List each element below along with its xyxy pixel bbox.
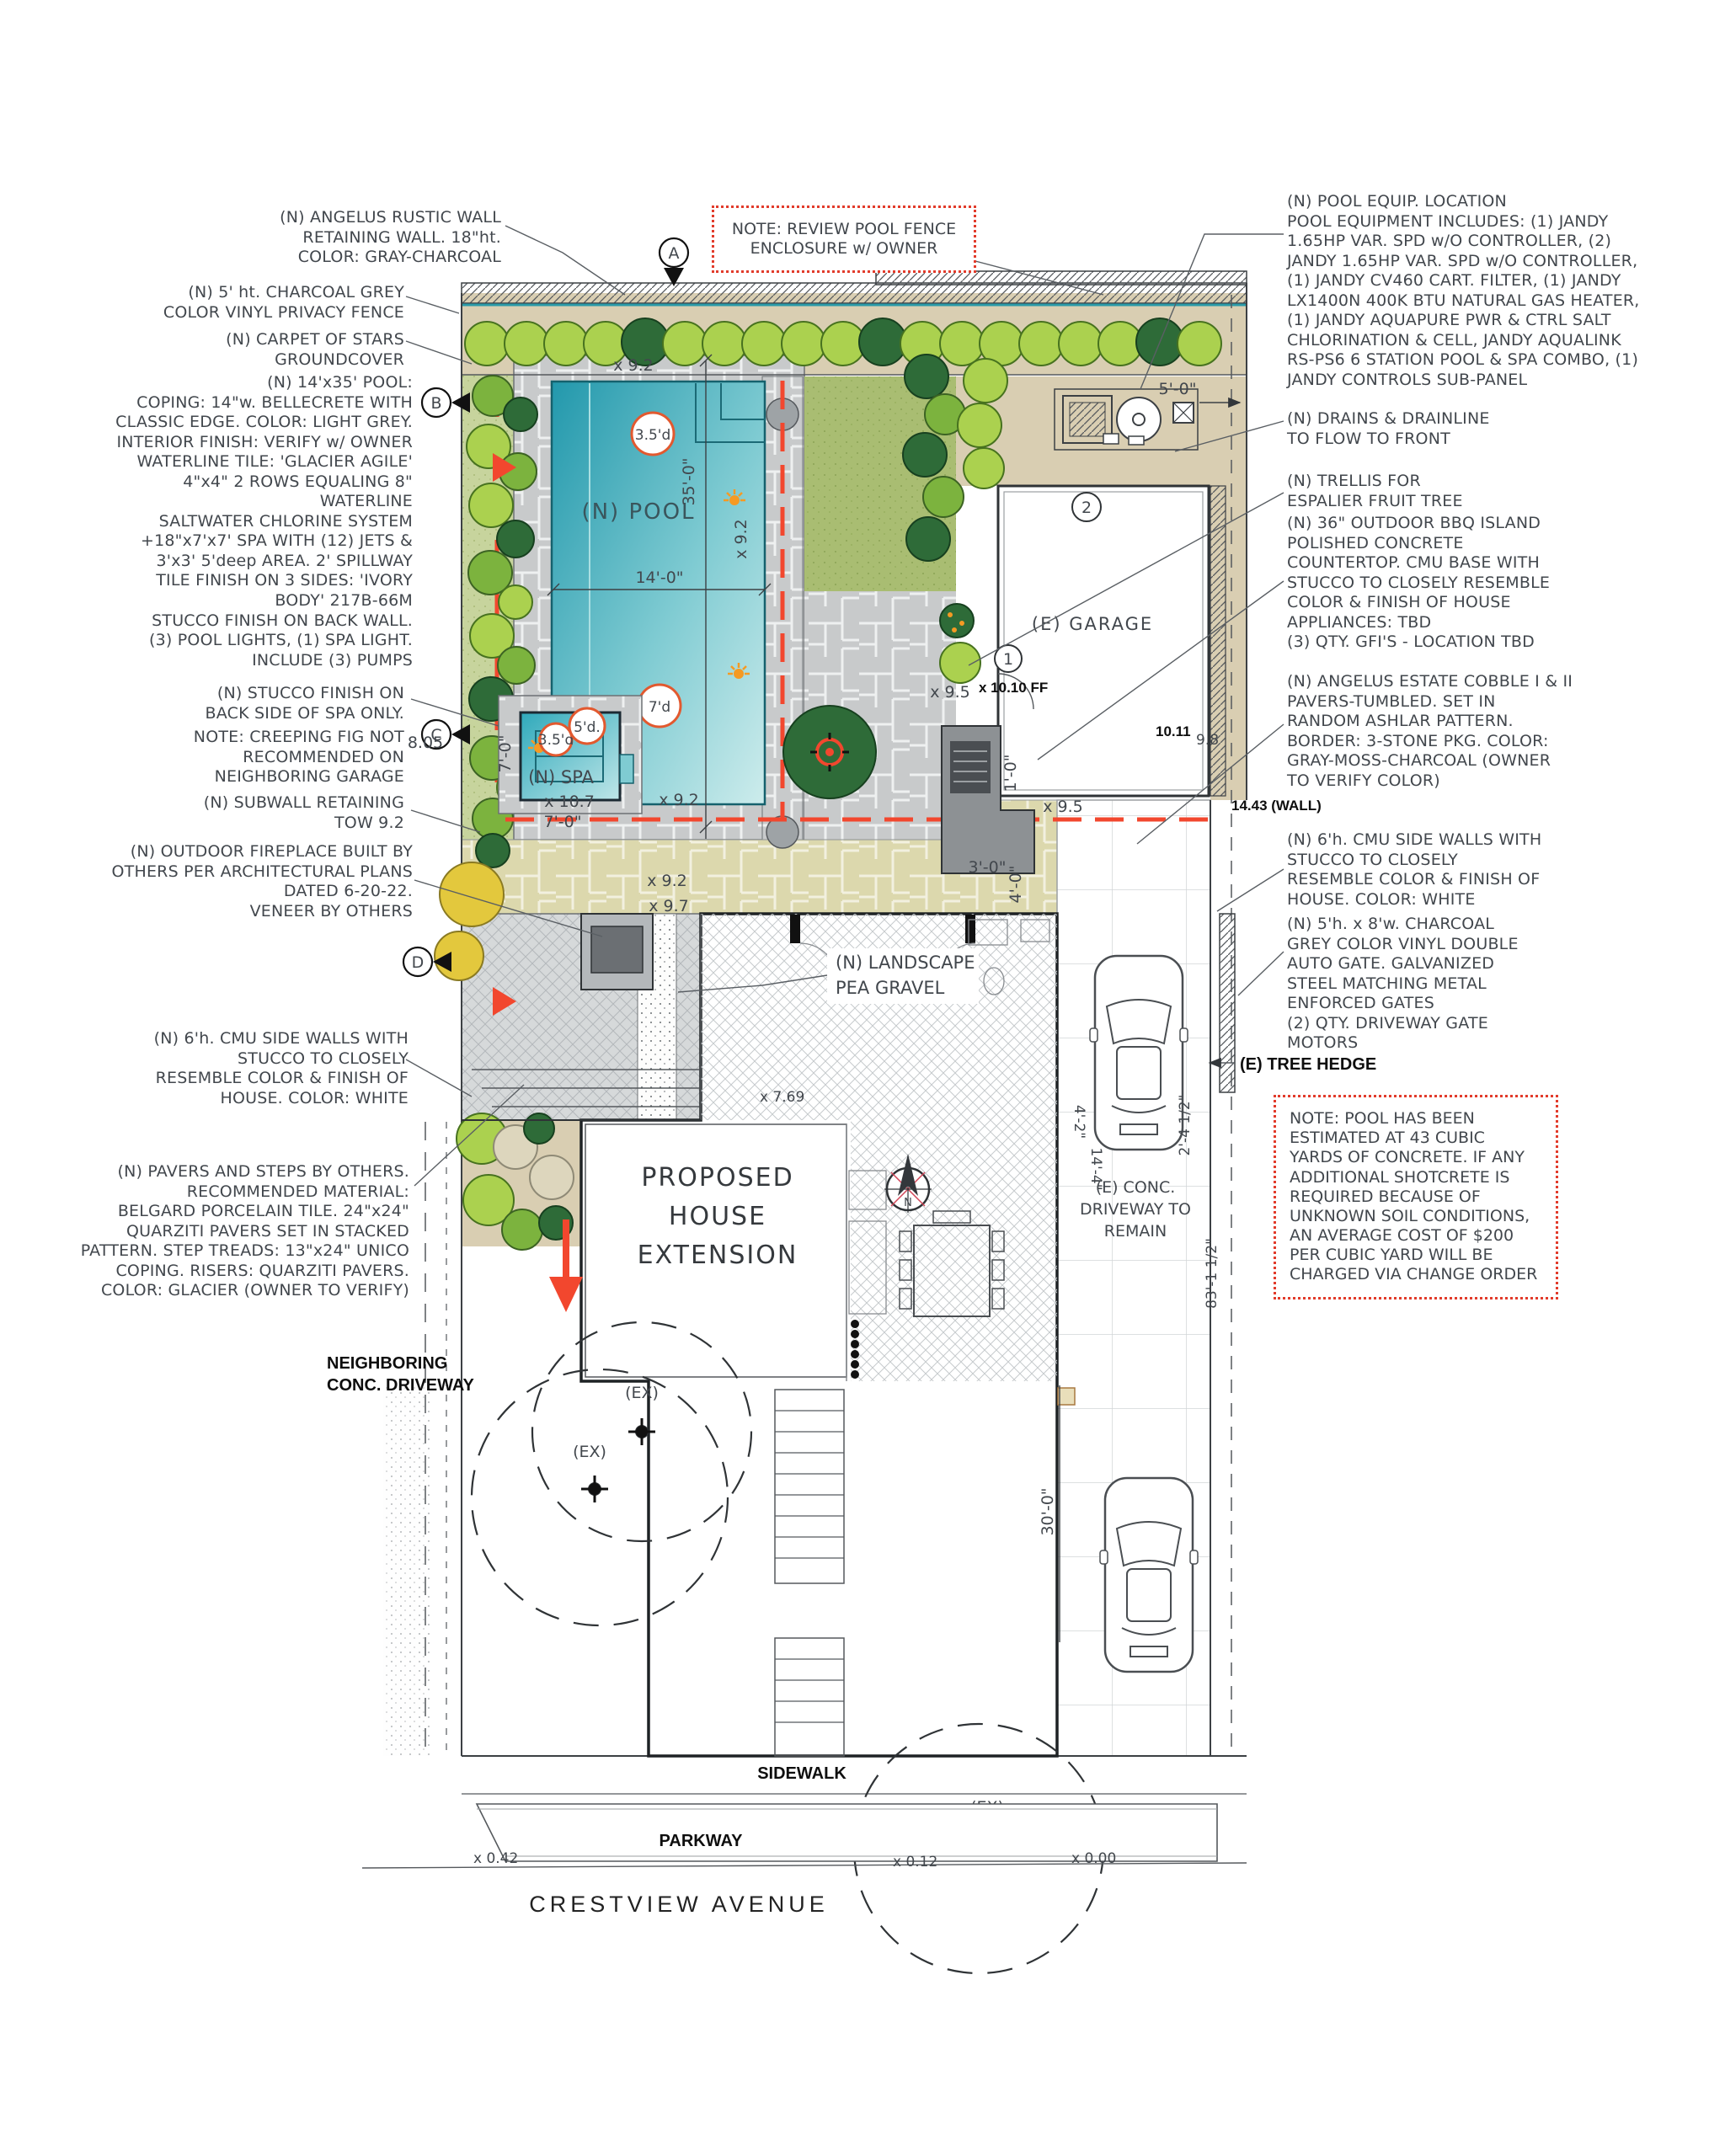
pool-depth-shallow: 3.5'd: [635, 427, 671, 444]
svg-text:x 9.2: x 9.2: [647, 872, 687, 890]
keynote-2: 2: [1081, 499, 1092, 517]
keynote-1: 1: [1003, 650, 1013, 669]
svg-text:14'-0": 14'-0": [635, 568, 683, 587]
svg-text:x 9.2: x 9.2: [613, 356, 654, 375]
house-label-1: PROPOSED: [641, 1163, 793, 1193]
spa-depth-shallow: 3.5'd: [538, 732, 574, 749]
section-d: D: [412, 953, 425, 972]
svg-text:1'-0": 1'-0": [1001, 755, 1020, 792]
svg-text:35'-0": 35'-0": [680, 457, 698, 505]
svg-text:x 9.2: x 9.2: [659, 791, 699, 809]
section-a: A: [669, 244, 680, 263]
ex-label: (EX): [625, 1384, 659, 1402]
site-plan-sheet: 3.5'd 7'd (N) POOL 3.5'd 5'd. (N) SPA: [0, 0, 1725, 2156]
note-cmu-west: (N) 6'h. CMU SIDE WALLS WITH STUCCO TO C…: [34, 1029, 409, 1108]
pea-gravel-label-1: (N) LANDSCAPE: [836, 953, 975, 973]
svg-text:3'-0": 3'-0": [969, 858, 1007, 877]
note-drains: (N) DRAINS & DRAINLINE TO FLOW TO FRONT: [1287, 409, 1641, 449]
parkway-label: PARKWAY: [660, 1832, 744, 1850]
note-trellis: (N) TRELLIS FOR ESPALIER FRUIT TREE: [1287, 472, 1641, 511]
section-b: B: [430, 394, 441, 413]
svg-text:x 0.00: x 0.00: [1071, 1850, 1116, 1867]
svg-text:x 0.42: x 0.42: [473, 1850, 518, 1867]
svg-text:x 10.7: x 10.7: [544, 792, 595, 811]
pea-gravel-label-2: PEA GRAVEL: [836, 978, 945, 998]
note-pool-spec: (N) 14'x35' POOL: COPING: 14"w. BELLECRE…: [21, 373, 413, 670]
house-label-3: EXTENSION: [638, 1241, 798, 1270]
note-privacy-fence: (N) 5' ht. CHARCOAL GREY COLOR VINYL PRI…: [46, 283, 404, 323]
hedge-row: [465, 318, 1221, 366]
svg-text:7'-0": 7'-0": [544, 813, 582, 831]
svg-text:x 0.12: x 0.12: [893, 1854, 937, 1870]
car-top-view: [1100, 1478, 1198, 1672]
pool-label: (N) POOL: [581, 499, 695, 525]
svg-text:83'-1 1/2": 83'-1 1/2": [1204, 1238, 1220, 1309]
pool-fence-note: NOTE: REVIEW POOL FENCE ENCLOSURE w/ OWN…: [712, 205, 976, 273]
svg-text:x 9.2: x 9.2: [732, 519, 750, 559]
sidewalk-label: SIDEWALK: [757, 1764, 846, 1783]
note-pool-equipment: (N) POOL EQUIP. LOCATION POOL EQUIPMENT …: [1287, 192, 1649, 390]
spa-depth-deep: 5'd.: [574, 719, 601, 736]
note-fireplace: (N) OUTDOOR FIREPLACE BUILT BY OTHERS PE…: [21, 842, 413, 921]
note-auto-gate: (N) 5'h. x 8'w. CHARCOAL GREY COLOR VINY…: [1287, 915, 1641, 1054]
note-stucco-spa: (N) STUCCO FINISH ON BACK SIDE OF SPA ON…: [46, 684, 404, 723]
svg-text:30'-0": 30'-0": [1039, 1487, 1057, 1535]
svg-text:10.11: 10.11: [1156, 723, 1191, 739]
svg-text:x 9.7: x 9.7: [649, 897, 689, 915]
tree-hedge-label: (E) TREE HEDGE: [1240, 1055, 1376, 1074]
svg-text:14.43 (WALL): 14.43 (WALL): [1231, 798, 1322, 814]
svg-text:8.05: 8.05: [408, 734, 443, 752]
note-subwall: (N) SUBWALL RETAINING TOW 9.2: [46, 793, 404, 833]
house-label-2: HOUSE: [669, 1202, 766, 1231]
svg-text:14'-4": 14'-4": [1087, 1147, 1104, 1190]
north-letter: N: [904, 1197, 912, 1209]
label-neighboring-driveway: NEIGHBORING CONC. DRIVEWAY: [327, 1353, 495, 1396]
svg-text:4'-2": 4'-2": [1071, 1105, 1087, 1139]
shotcrete-note: NOTE: POOL HAS BEEN ESTIMATED AT 43 CUBI…: [1274, 1095, 1558, 1299]
note-cmu-east: (N) 6'h. CMU SIDE WALLS WITH STUCCO TO C…: [1287, 830, 1641, 910]
note-retaining-wall: (N) ANGELUS RUSTIC WALL RETAINING WALL. …: [147, 208, 501, 268]
car-top-view: [1090, 956, 1188, 1150]
note-cobble-pavers: (N) ANGELUS ESTATE COBBLE I & II PAVERS-…: [1287, 672, 1641, 791]
svg-text:x 10.10 FF: x 10.10 FF: [979, 680, 1048, 696]
street: SIDEWALK PARKWAY CRESTVIEW AVENUE: [362, 1764, 1247, 1917]
garage-label: (E) GARAGE: [1032, 614, 1153, 634]
pool-depth-deep: 7'd: [649, 699, 670, 716]
note-groundcover: (N) CARPET OF STARS GROUNDCOVER: [46, 330, 404, 370]
garage: (E) GARAGE 2 1: [995, 486, 1226, 796]
svg-text:x 9.5: x 9.5: [1043, 798, 1083, 816]
svg-text:5'-0": 5'-0": [1159, 380, 1197, 398]
driveway-label-2: DRIVEWAY TO: [1080, 1200, 1191, 1219]
note-creeping-fig: NOTE: CREEPING FIG NOT RECOMMENDED ON NE…: [46, 728, 404, 787]
svg-text:x 7.69: x 7.69: [760, 1089, 804, 1106]
svg-text:9.8: 9.8: [1196, 732, 1219, 749]
spa-label: (N) SPA: [528, 767, 594, 787]
note-pavers-steps: (N) PAVERS AND STEPS BY OTHERS. RECOMMEN…: [15, 1162, 409, 1301]
ex-label: (EX): [573, 1443, 606, 1461]
driveway-label-3: REMAIN: [1104, 1222, 1167, 1241]
svg-text:4'-0": 4'-0": [1007, 866, 1025, 904]
street-name: CRESTVIEW AVENUE: [529, 1892, 829, 1917]
svg-text:x 9.5: x 9.5: [930, 683, 970, 702]
note-bbq-island: (N) 36" OUTDOOR BBQ ISLAND POLISHED CONC…: [1287, 514, 1641, 653]
svg-text:2'-4 1/2": 2'-4 1/2": [1177, 1094, 1194, 1155]
svg-text:7'-0": 7'-0": [496, 735, 515, 773]
driveway-label-1: (E) CONC.: [1096, 1178, 1176, 1197]
